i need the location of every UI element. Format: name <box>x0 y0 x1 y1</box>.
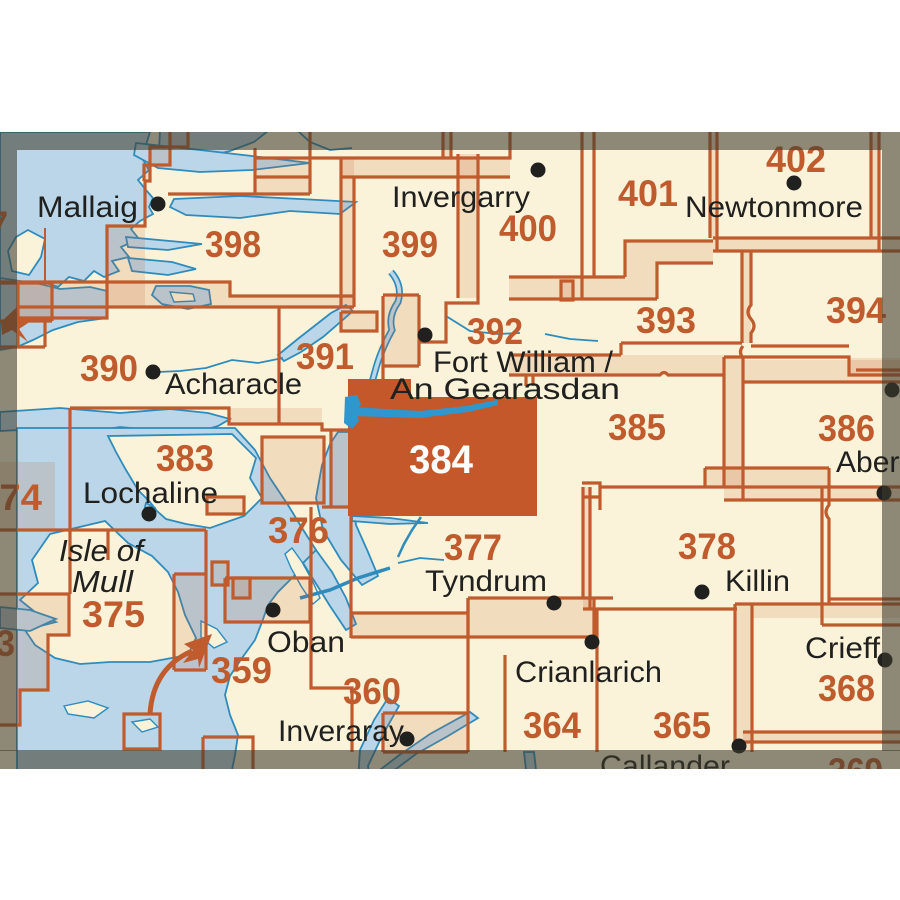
svg-text:Inveraray: Inveraray <box>278 715 404 748</box>
svg-text:Killin: Killin <box>725 565 790 598</box>
svg-text:Invergarry: Invergarry <box>392 181 530 214</box>
svg-text:375: 375 <box>82 594 145 635</box>
svg-text:364: 364 <box>523 705 581 746</box>
svg-text:393: 393 <box>636 300 696 341</box>
svg-text:Tyndrum: Tyndrum <box>425 565 547 598</box>
svg-text:Oban: Oban <box>267 626 345 659</box>
svg-text:399: 399 <box>382 224 438 265</box>
svg-text:383: 383 <box>156 438 214 479</box>
svg-text:Aberfeldy: Aberfeldy <box>836 446 900 479</box>
svg-text:376: 376 <box>268 510 329 551</box>
svg-text:Crieff: Crieff <box>805 632 881 665</box>
svg-text:401: 401 <box>618 173 678 214</box>
svg-text:359: 359 <box>211 650 272 691</box>
svg-text:Newtonmore: Newtonmore <box>685 191 863 224</box>
svg-text:400: 400 <box>499 208 557 249</box>
svg-text:Mull: Mull <box>72 564 134 599</box>
svg-text:Mallaig: Mallaig <box>37 191 138 224</box>
svg-text:Crianlarich: Crianlarich <box>515 656 662 689</box>
svg-text:Acharacle: Acharacle <box>165 368 302 401</box>
svg-text:377: 377 <box>444 527 502 568</box>
svg-text:Lochaline: Lochaline <box>83 477 218 510</box>
svg-text:365: 365 <box>653 705 711 746</box>
svg-text:Isle of: Isle of <box>59 533 146 568</box>
svg-text:An Gearasdan: An Gearasdan <box>390 373 620 406</box>
svg-text:360: 360 <box>343 671 401 712</box>
svg-text:378: 378 <box>678 526 736 567</box>
svg-text:384: 384 <box>409 438 474 482</box>
svg-text:391: 391 <box>296 336 354 377</box>
svg-text:368: 368 <box>818 668 875 709</box>
svg-text:386: 386 <box>818 408 875 449</box>
svg-text:394: 394 <box>826 290 886 331</box>
svg-text:390: 390 <box>80 348 138 389</box>
svg-text:385: 385 <box>608 407 666 448</box>
svg-text:398: 398 <box>205 224 261 265</box>
